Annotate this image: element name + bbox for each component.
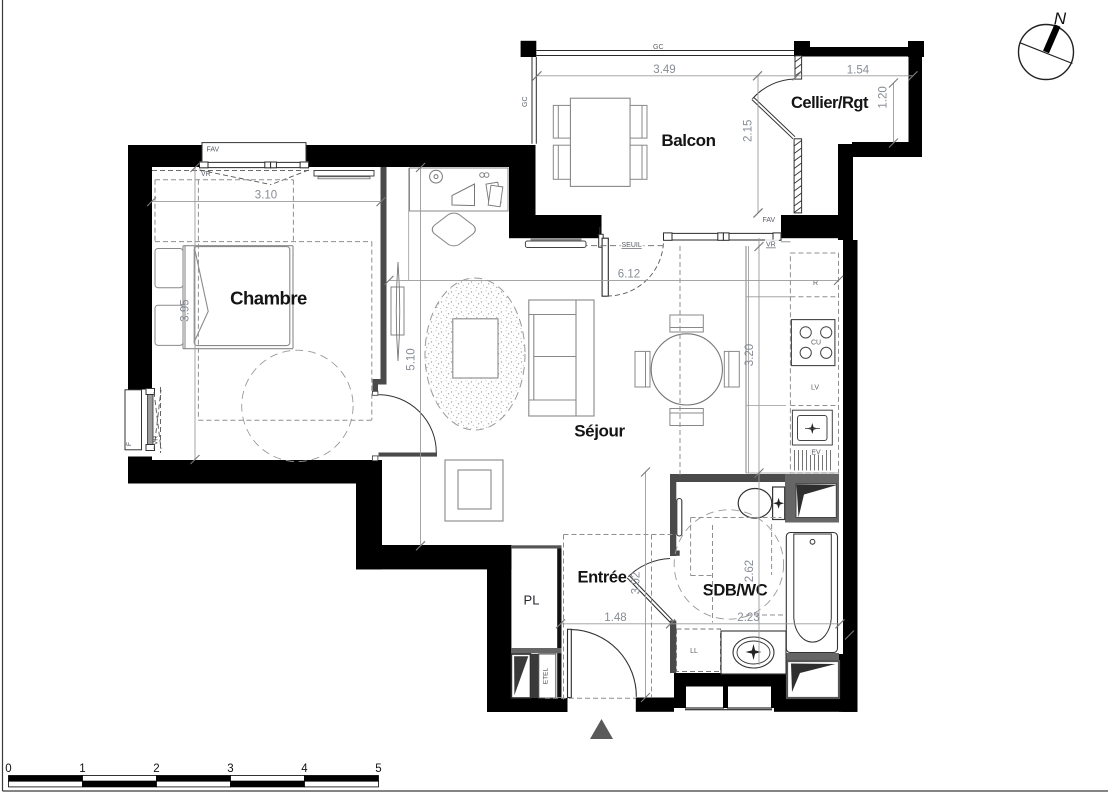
svg-text:Balcon: Balcon xyxy=(661,131,715,150)
svg-text:3.95: 3.95 xyxy=(180,299,192,321)
svg-text:Cellier/Rgt: Cellier/Rgt xyxy=(791,94,869,112)
svg-text:3.10: 3.10 xyxy=(255,190,277,202)
svg-text:SEUIL: SEUIL xyxy=(622,242,642,249)
svg-text:FAV: FAV xyxy=(207,147,220,154)
svg-text:6.12: 6.12 xyxy=(618,269,640,281)
svg-text:2.23: 2.23 xyxy=(737,612,759,624)
svg-text:EV: EV xyxy=(811,450,821,457)
svg-text:CU: CU xyxy=(811,340,821,347)
svg-text:4: 4 xyxy=(301,763,308,775)
svg-text:VR: VR xyxy=(766,242,776,249)
svg-text:3.02: 3.02 xyxy=(631,572,643,594)
svg-text:GC: GC xyxy=(653,44,664,51)
svg-text:3.49: 3.49 xyxy=(653,64,675,76)
svg-text:1: 1 xyxy=(79,763,85,775)
svg-text:ETEL: ETEL xyxy=(543,667,550,684)
svg-text:1.20: 1.20 xyxy=(878,86,890,108)
svg-text:LV: LV xyxy=(811,385,819,392)
svg-text:Entrée: Entrée xyxy=(578,569,627,587)
svg-text:2: 2 xyxy=(153,763,159,775)
svg-text:FAV: FAV xyxy=(763,217,776,224)
svg-text:F: F xyxy=(126,442,133,446)
svg-text:1.54: 1.54 xyxy=(847,64,870,76)
svg-text:1.48: 1.48 xyxy=(604,612,626,624)
svg-text:3: 3 xyxy=(227,763,233,775)
svg-text:GC: GC xyxy=(522,97,529,108)
svg-text:LL: LL xyxy=(690,648,698,655)
svg-text:5: 5 xyxy=(375,763,381,775)
svg-text:Séjour: Séjour xyxy=(574,422,625,441)
svg-text:R: R xyxy=(813,280,818,287)
svg-text:Chambre: Chambre xyxy=(230,288,307,309)
svg-text:0: 0 xyxy=(5,763,11,775)
svg-text:N: N xyxy=(1054,9,1067,28)
svg-text:PL: PL xyxy=(524,593,540,608)
svg-text:3.20: 3.20 xyxy=(744,344,756,366)
svg-text:2.62: 2.62 xyxy=(744,560,756,582)
svg-text:VR: VR xyxy=(153,436,160,445)
svg-text:2.15: 2.15 xyxy=(743,120,755,142)
svg-text:5.10: 5.10 xyxy=(406,348,418,370)
